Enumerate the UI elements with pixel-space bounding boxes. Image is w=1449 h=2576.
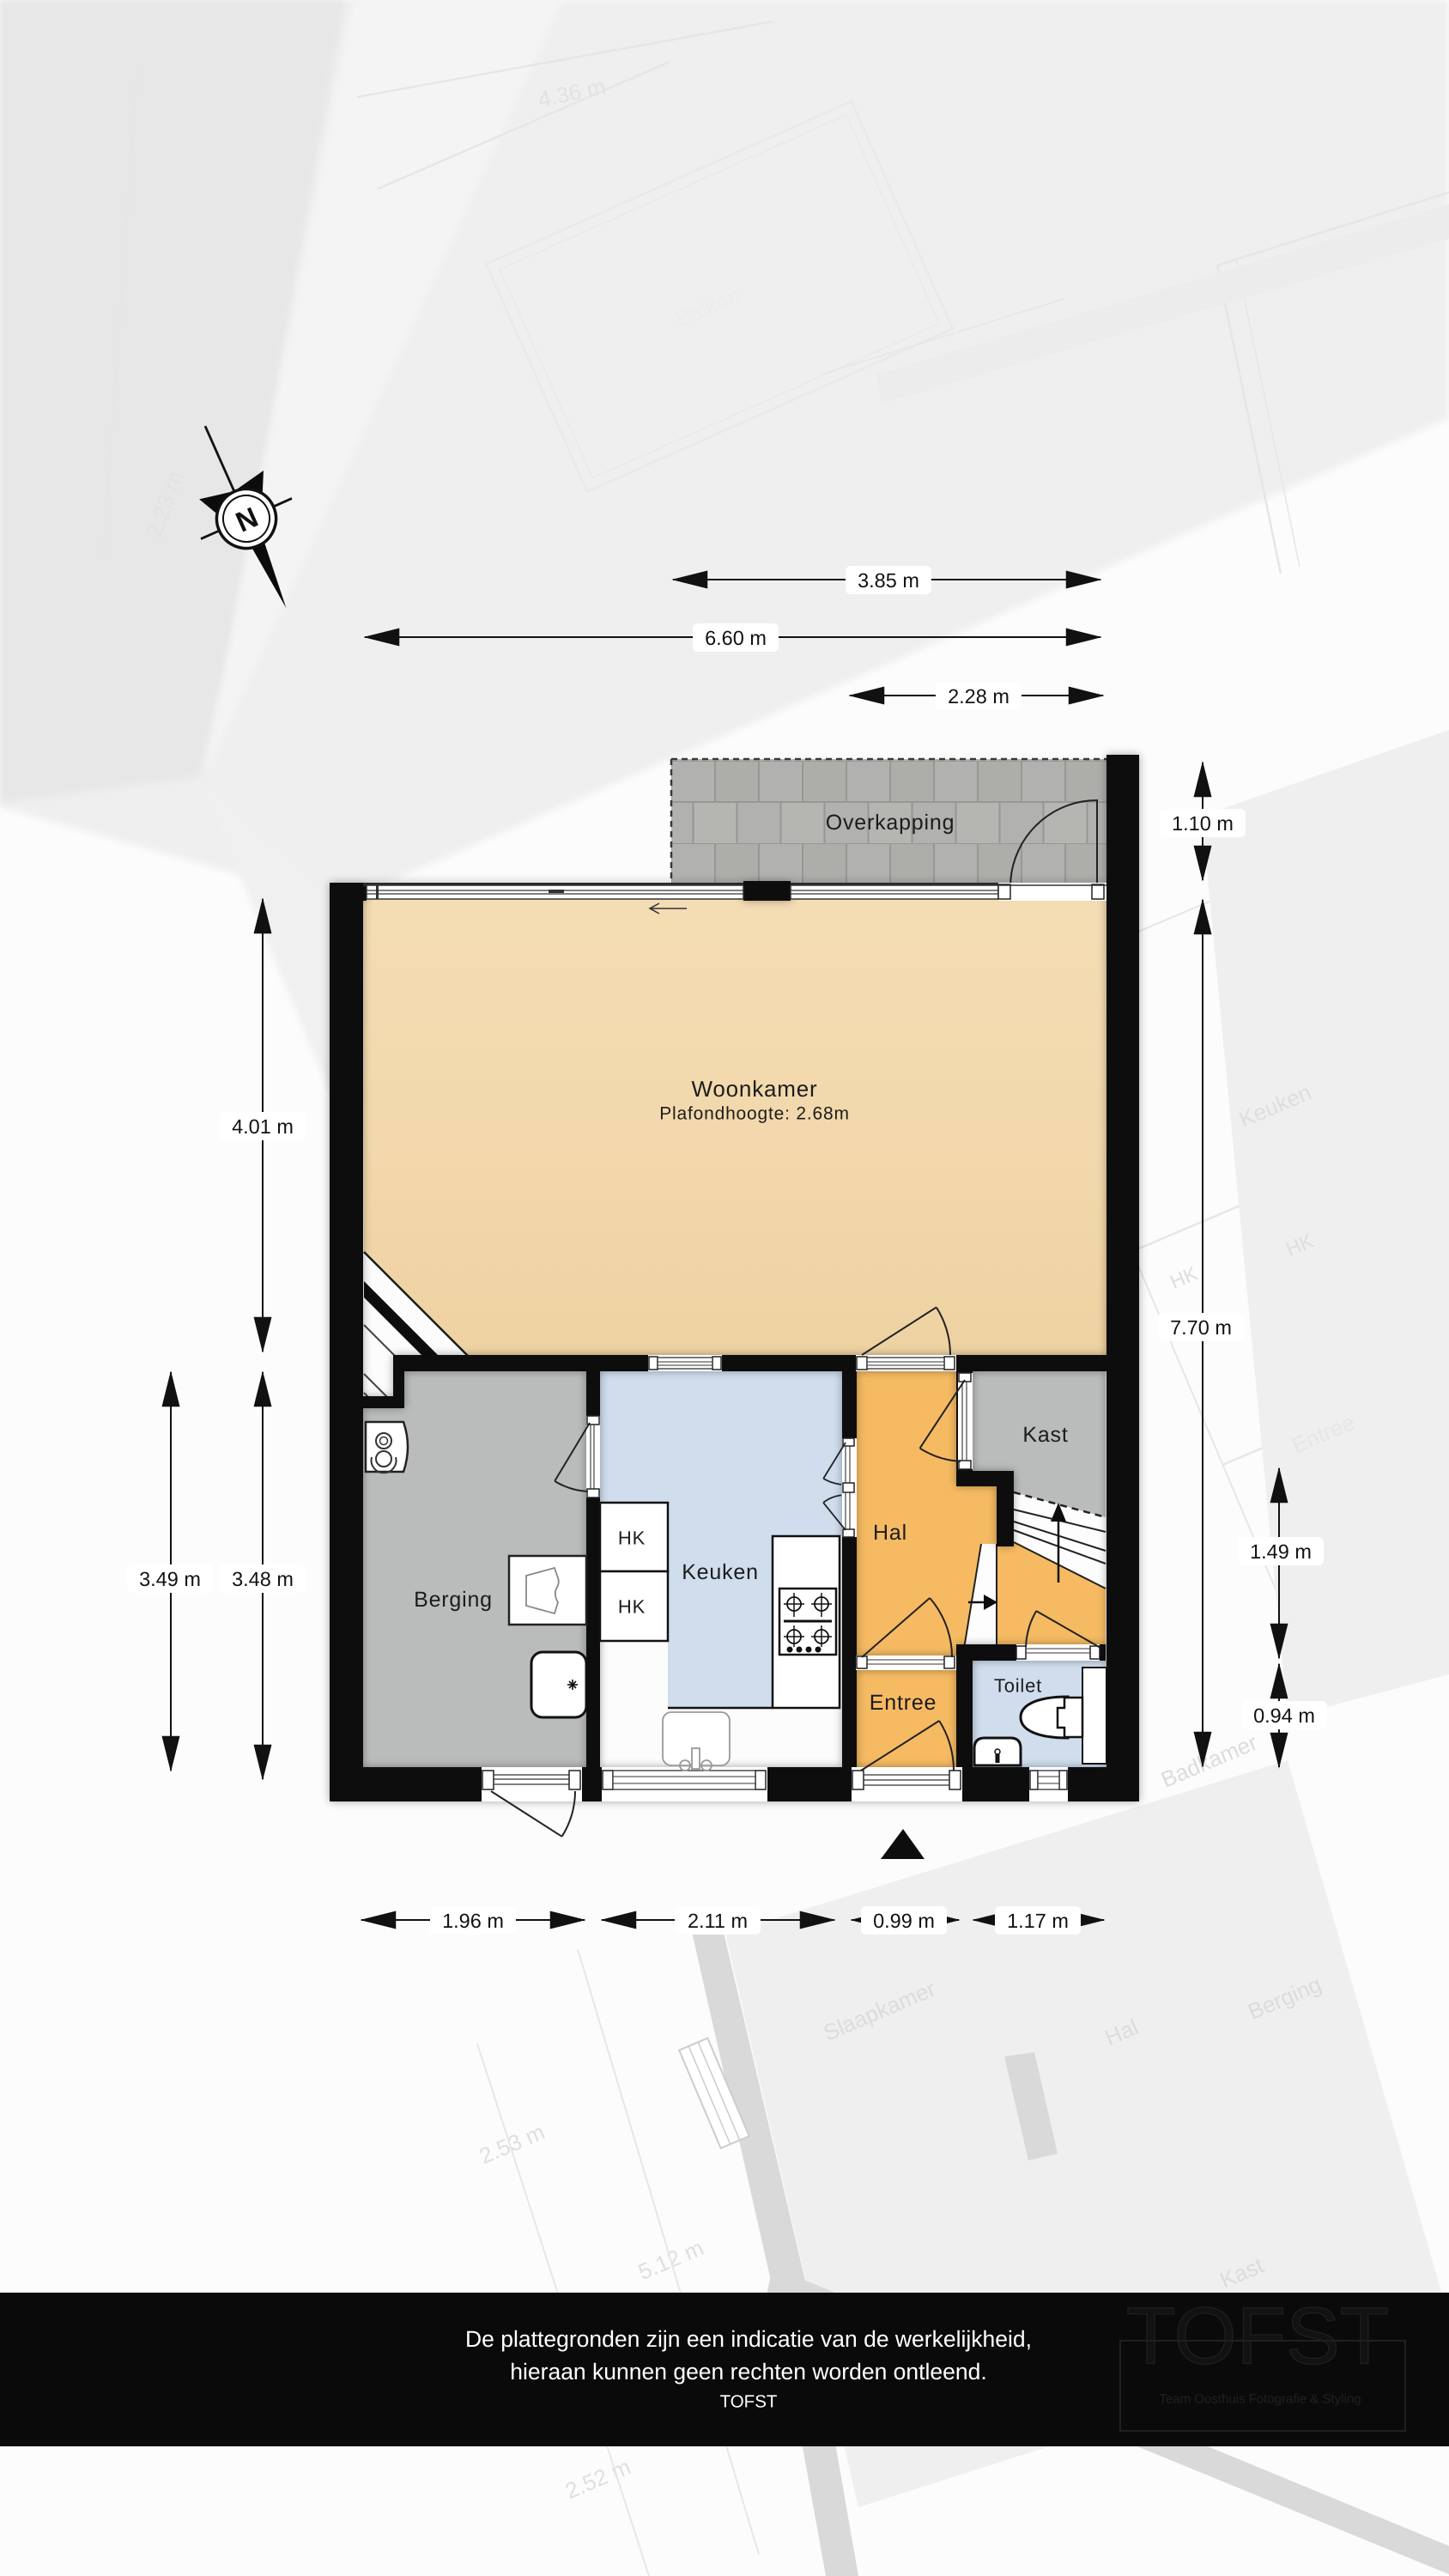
- svg-text:Kast: Kast: [1022, 1423, 1068, 1447]
- svg-text:6.60 m: 6.60 m: [705, 627, 767, 649]
- svg-text:4.01 m: 4.01 m: [232, 1115, 294, 1138]
- svg-text:1.96 m: 1.96 m: [442, 1910, 504, 1932]
- svg-text:2.11 m: 2.11 m: [688, 1910, 748, 1932]
- svg-text:Keuken: Keuken: [682, 1560, 759, 1584]
- svg-text:1.10 m: 1.10 m: [1172, 812, 1234, 835]
- svg-text:7.70 m: 7.70 m: [1170, 1316, 1232, 1339]
- svg-text:0.99 m: 0.99 m: [873, 1910, 935, 1932]
- svg-text:Team Oosthuis Fotografie & Sty: Team Oosthuis Fotografie & Styling: [1159, 2392, 1361, 2407]
- svg-text:TOFST: TOFST: [720, 2392, 778, 2412]
- svg-text:Berging: Berging: [414, 1588, 493, 1612]
- svg-text:0.94 m: 0.94 m: [1253, 1704, 1315, 1727]
- svg-text:hieraan kunnen geen rechten wo: hieraan kunnen geen rechten worden ontle…: [510, 2359, 986, 2385]
- svg-text:Entree: Entree: [870, 1691, 937, 1715]
- svg-text:3.49 m: 3.49 m: [139, 1568, 201, 1590]
- svg-text:Plafondhoogte: 2.68m: Plafondhoogte: 2.68m: [659, 1104, 850, 1124]
- svg-text:1.17 m: 1.17 m: [1007, 1910, 1069, 1932]
- svg-text:1.49 m: 1.49 m: [1250, 1540, 1312, 1563]
- svg-text:De plattegronden zijn een indi: De plattegronden zijn een indicatie van …: [465, 2326, 1032, 2352]
- svg-text:3.48 m: 3.48 m: [232, 1568, 294, 1590]
- svg-text:TOFST: TOFST: [1126, 2291, 1389, 2381]
- svg-text:HK: HK: [618, 1528, 646, 1549]
- svg-text:Overkapping: Overkapping: [826, 811, 955, 835]
- svg-text:Toilet: Toilet: [994, 1675, 1042, 1697]
- svg-text:3.85 m: 3.85 m: [858, 569, 919, 592]
- svg-text:Woonkamer: Woonkamer: [692, 1076, 818, 1102]
- svg-text:HK: HK: [618, 1596, 646, 1618]
- svg-text:2.28 m: 2.28 m: [948, 685, 1009, 708]
- svg-text:Hal: Hal: [873, 1521, 907, 1545]
